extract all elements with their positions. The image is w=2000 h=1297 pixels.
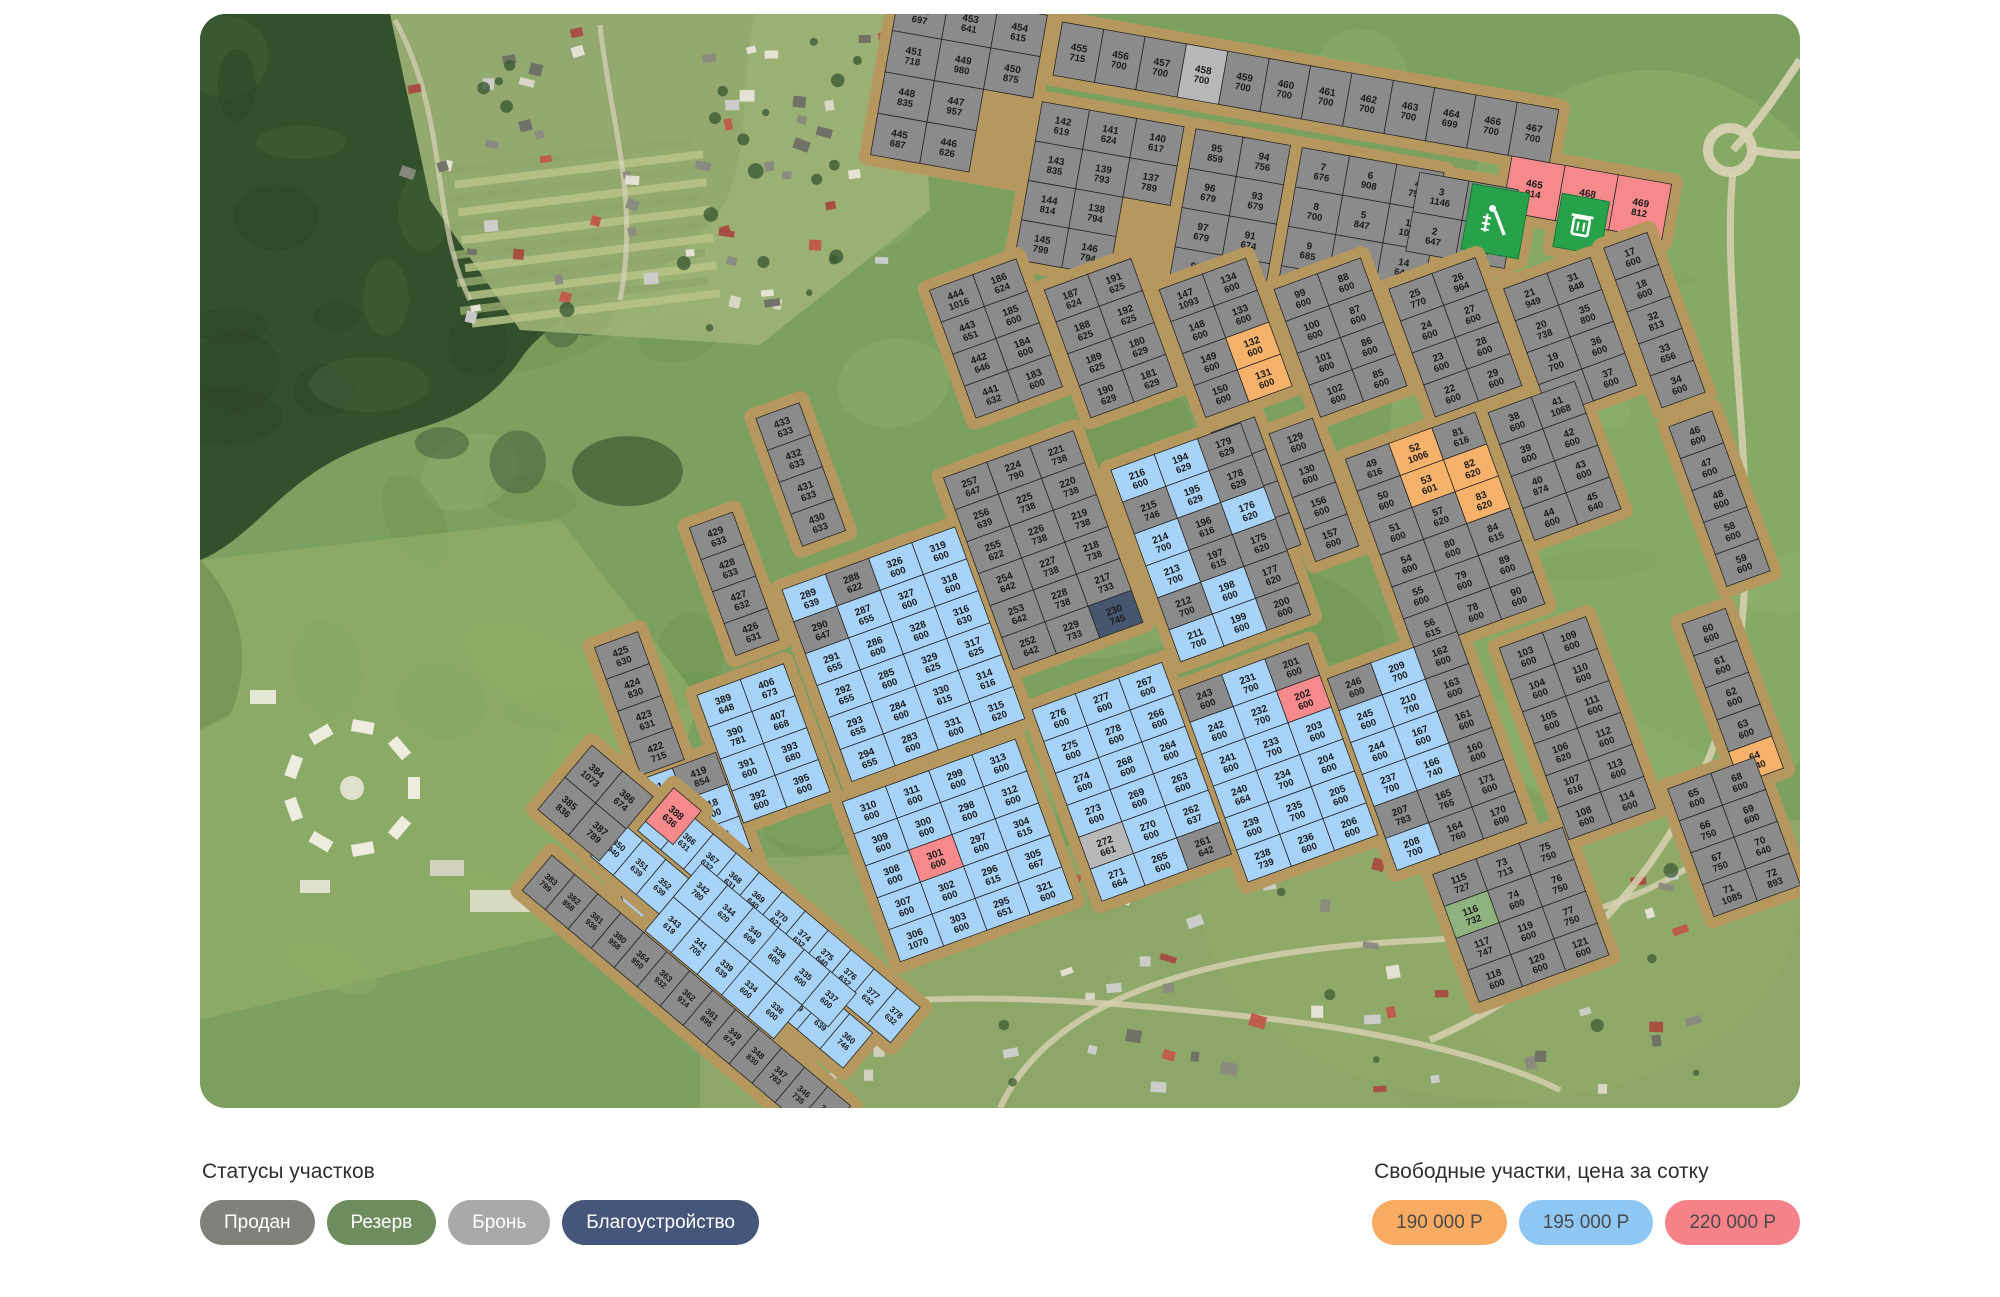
price-pill-2[interactable]: 220 000 Р [1665,1200,1800,1245]
status-pills: ПроданРезервБроньБлагоустройство [200,1200,759,1245]
status-pill-1[interactable]: Резерв [327,1200,437,1245]
plot-467[interactable] [1508,102,1559,162]
plot-450[interactable] [984,48,1041,98]
plot-map: 4526974517184488354456874536414499804479… [200,14,1800,1108]
status-pill-0[interactable]: Продан [200,1200,315,1245]
plot-137[interactable] [1123,158,1177,206]
legend-prices: Свободные участки, цена за сотку 190 000… [1372,1154,1800,1245]
status-pill-2[interactable]: Бронь [448,1200,550,1245]
legend-statuses-title: Статусы участков [202,1160,759,1184]
legend-row: Статусы участков ПроданРезервБроньБлагоу… [200,1154,1800,1245]
satellite-plot-map: 4526974517184488354456874536414499804479… [200,14,1800,1108]
legend-statuses: Статусы участков ПроданРезервБроньБлагоу… [200,1154,759,1245]
plot-445[interactable] [870,113,927,163]
page: { "legend_statuses": { "title": "Статусы… [0,0,2000,1297]
status-pill-3[interactable]: Благоустройство [562,1200,759,1245]
plot-2[interactable] [1406,212,1462,260]
price-pills: 190 000 Р195 000 Р220 000 Р [1372,1200,1800,1245]
legend-prices-title: Свободные участки, цена за сотку [1374,1160,1800,1184]
price-pill-1[interactable]: 195 000 Р [1519,1200,1654,1245]
plot-446[interactable] [920,122,977,172]
price-pill-0[interactable]: 190 000 Р [1372,1200,1507,1245]
